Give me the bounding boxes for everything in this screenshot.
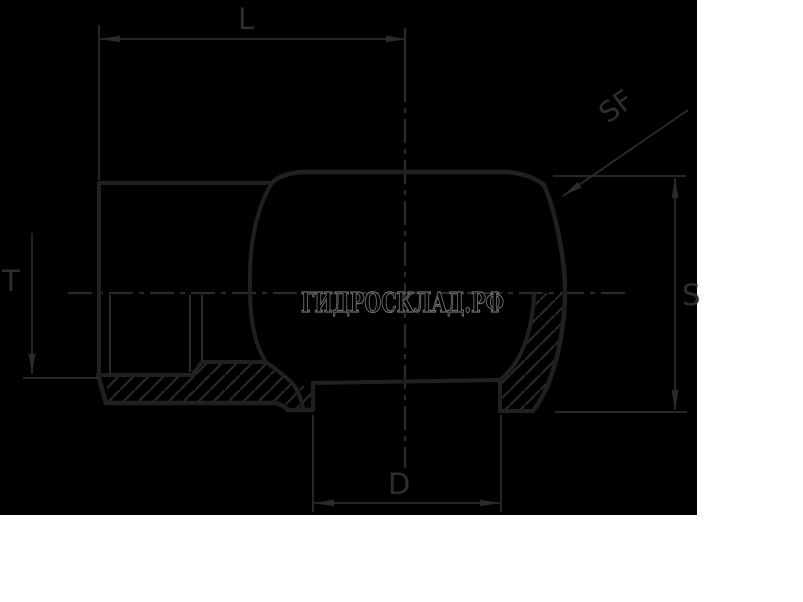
dim-label-T: T	[1, 264, 20, 298]
dim-label-S: S	[682, 278, 700, 312]
dim-label-L: L	[238, 2, 254, 36]
drawing-canvas	[0, 0, 697, 515]
dim-label-D: D	[388, 467, 410, 501]
drawing-page: L T S D SF ГИДРОСКЛАД.РФ	[0, 0, 803, 602]
watermark-text: ГИДРОСКЛАД.РФ	[301, 288, 504, 319]
fitting-section-drawing: L T S D SF ГИДРОСКЛАД.РФ	[0, 0, 803, 602]
